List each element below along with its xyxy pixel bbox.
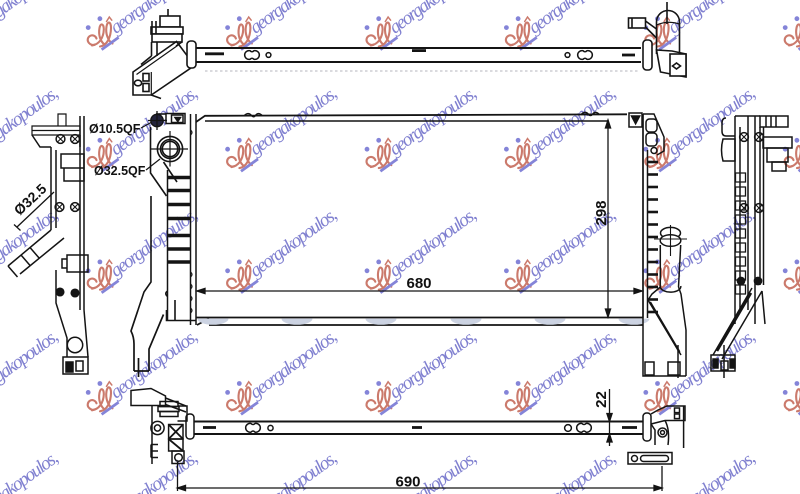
svg-text:298: 298 xyxy=(593,200,610,225)
svg-text:Ø10.5QF: Ø10.5QF xyxy=(89,122,141,136)
svg-text:Ø32.5QF: Ø32.5QF xyxy=(94,164,146,178)
svg-text:690: 690 xyxy=(395,474,420,491)
svg-text:22: 22 xyxy=(593,391,610,408)
svg-text:680: 680 xyxy=(406,275,431,292)
